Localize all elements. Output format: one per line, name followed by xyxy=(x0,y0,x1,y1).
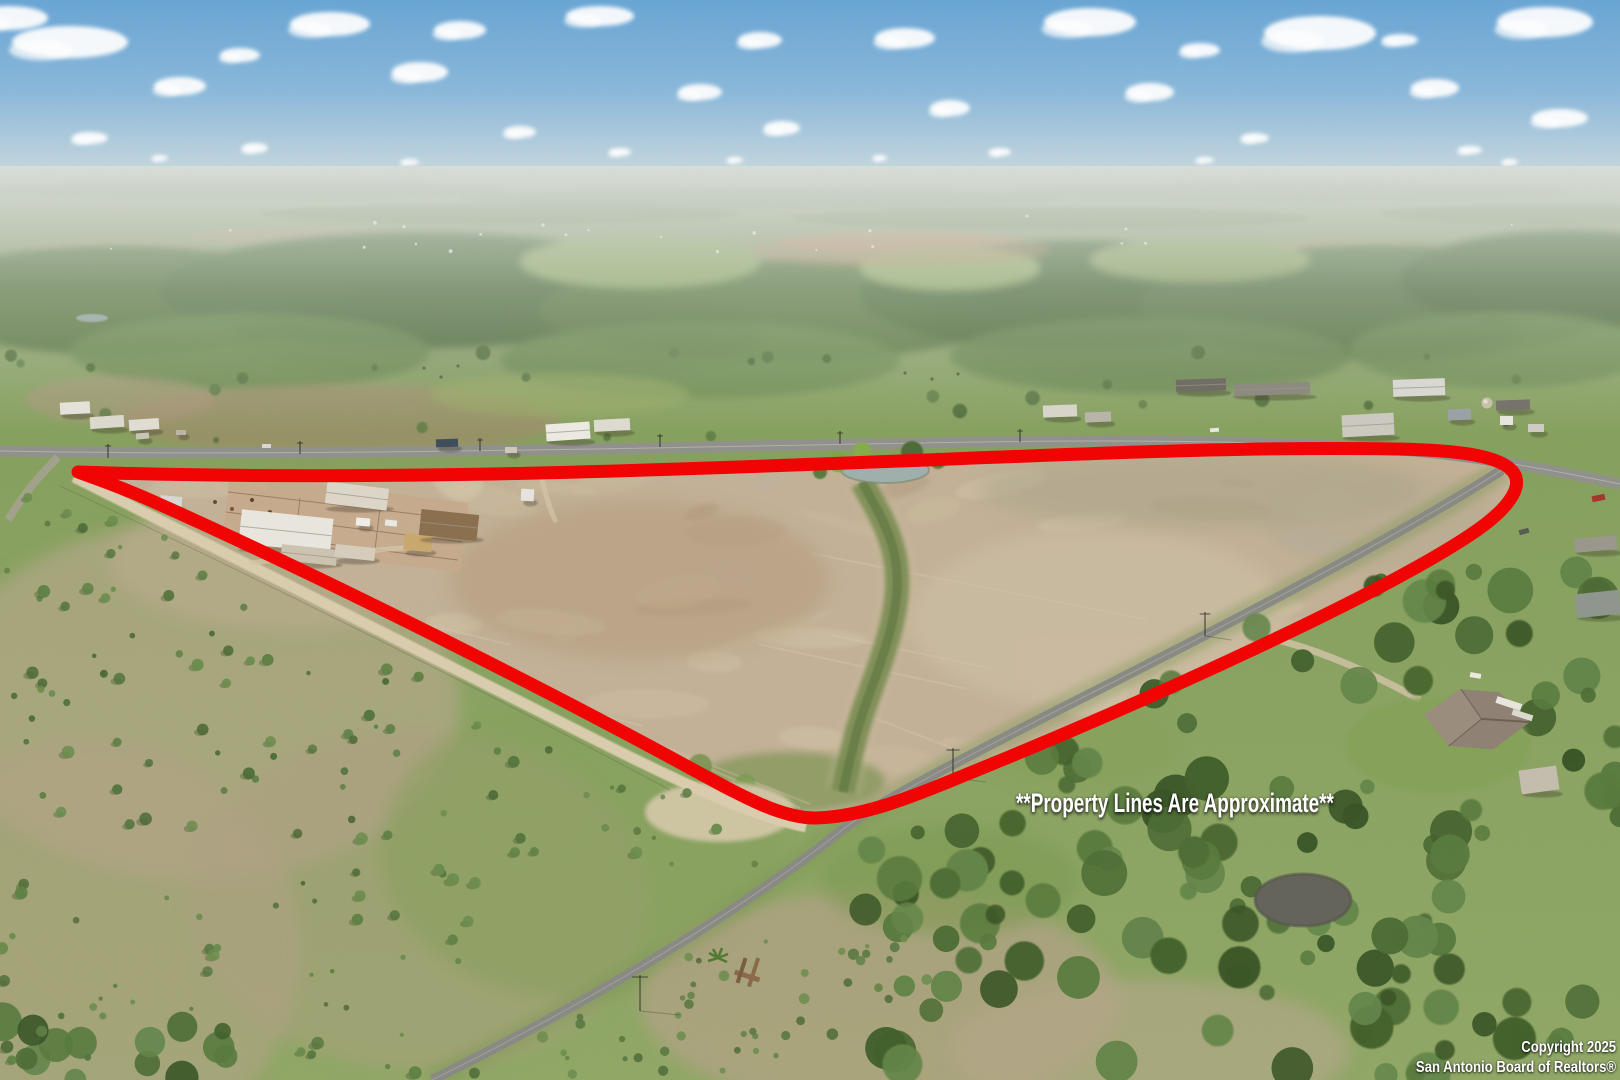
copyright-notice: Copyright 2025 San Antonio Board of Real… xyxy=(1416,1038,1616,1078)
photo-grain xyxy=(0,0,1620,1080)
aerial-photo-scene xyxy=(0,0,1620,1080)
copyright-line1: Copyright 2025 xyxy=(1416,1038,1616,1058)
aerial-photo: **Property Lines Are Approximate** Copyr… xyxy=(0,0,1620,1080)
property-lines-disclaimer: **Property Lines Are Approximate** xyxy=(1016,788,1334,819)
copyright-line2: San Antonio Board of Realtors® xyxy=(1416,1058,1616,1078)
